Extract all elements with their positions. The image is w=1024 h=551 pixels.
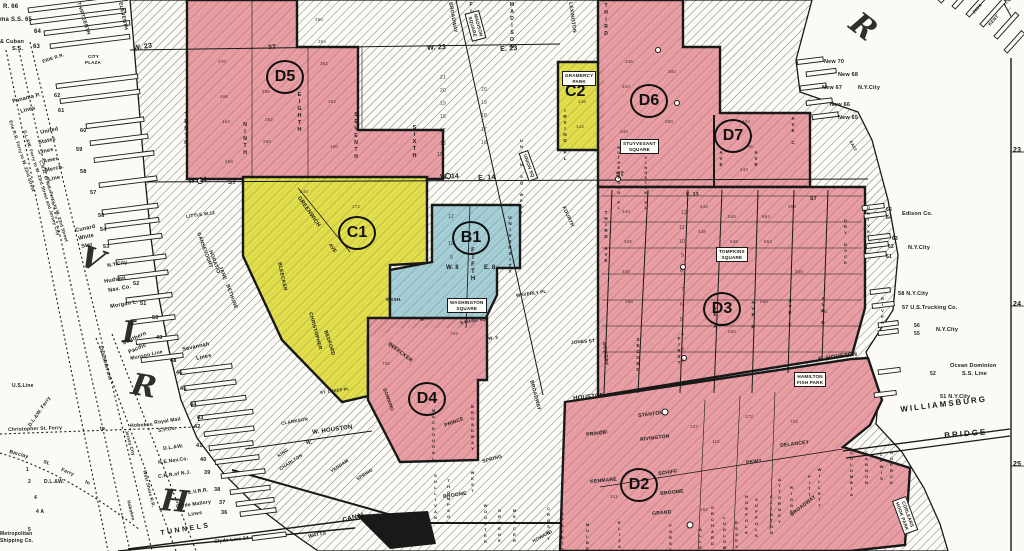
street-label: IRVING PL [562,108,567,162]
park-label: MADISON SQUARE [465,10,487,42]
street-label: 10 [679,240,685,245]
street-label: BROADWAY [790,495,817,518]
pier-label-hudson: 37 [219,501,226,507]
pier-label-east-river: 65 [886,208,892,213]
pier-label-hudson: Barclay [9,450,29,460]
street-label: CANNON [864,450,868,486]
pier-label-hudson: 63 [33,44,40,50]
street-label: 16 [481,141,487,146]
block-number: 262 [265,118,273,123]
street-label: 20 [481,88,487,93]
street-label: 8 [680,269,683,274]
street-label: WILLETT [817,467,821,509]
street-label: UNIVERSITY [507,215,512,275]
pier-label-hudson: L.V.R.R. [188,488,209,496]
pier-label-hudson: 40 [200,458,207,464]
block-number: 458 [225,160,233,165]
block-number: 348 [622,270,630,275]
park-label: TOMPKINS SQUARE [716,247,748,262]
street-label: 16 [440,142,446,147]
street-label: STANTON [638,411,664,419]
block-number: 260 [263,140,271,145]
street-label: 21 [440,76,446,81]
pier-label-hudson: to [100,427,105,432]
street-label: UNION SQ WEST [519,138,523,216]
street-label: HOUSTON [573,393,605,402]
block-number: 137 [690,425,698,430]
pier-label-hudson: 38 [214,488,221,494]
street-label: W. 3 [488,336,498,342]
street-label: BOWERY [601,342,608,366]
pier-label-hudson: 1 [26,468,29,473]
pier-label-hudson: Jersey City [124,430,136,456]
pier-label-hudson: Lines [20,106,36,115]
block-number: 470 [218,60,226,65]
pier-label-east-river: 51 N.Y.City [940,395,970,401]
pier-label-east-river: N.Y.City [936,328,958,334]
pier-label-east-river: New 67 [822,86,842,92]
pier-label-hudson: Clyde Line 34 [214,536,249,545]
pier-label-hudson: U.S.Line [12,384,34,389]
zone-label-D7: D7 [714,119,752,153]
block-number: 346 [624,240,632,245]
street-label: KING [277,448,289,459]
zone-grade-text: D4 [417,391,437,407]
street-label: EAST [848,140,857,152]
pier-label-hudson: 45 [180,387,187,393]
pier-label-hudson: Royal Mail [154,417,181,426]
pier-label-east-river: 56 [914,324,920,329]
pier-label-hudson: & Cuban [0,40,24,46]
pier-label-hudson: Ferry [60,468,74,478]
pier-label-hudson: 46 [176,371,183,377]
street-label: W. HOUSTON [312,424,353,436]
pier-label-hudson: D.L.&W. Ferry [28,396,52,428]
street-label: ST [810,197,817,202]
block-number: 142 [576,125,584,130]
street-label: 7 [681,288,684,293]
street-label: DOWNING [382,388,394,412]
street-label: S.WASH. SQ. [460,317,487,325]
pier-label-hudson: 60 [80,129,87,135]
street-label: AVE [753,150,758,168]
street-label: 17 [440,129,446,134]
street-label: 3 [681,348,684,353]
block-number: 715 [790,420,798,425]
street-label: 19 [481,101,487,106]
pier-label-hudson: Nav. Co. [108,285,132,294]
street-label: ST. LUKES PL [320,387,349,395]
street-label: RUTHERFORD PL [616,146,620,211]
street-label: CHRISTOPHER [307,312,322,350]
street-label: PKWY [746,459,762,466]
street-label: RIVER [880,296,884,326]
street-label: AVE [327,243,337,254]
block-number: 356 [625,300,633,305]
street-label: MULBERRY [585,522,589,551]
street-label: FOURTH [560,206,574,228]
street-label: SULLIVAN [433,473,437,521]
street-label: NINTH [242,122,247,157]
street-label: LEXINGTON [567,2,576,33]
street-label: LUDLOW [722,515,726,551]
street-label: ESSEX [734,520,738,550]
street-label: ELEVENTH [117,2,128,31]
street-label: DELANCEY [780,440,810,449]
street-label: GREENE [497,508,501,544]
pier-label-east-river: 55 [914,332,920,337]
street-label: GOERCK [889,450,893,486]
street-label: SCHIFF [658,470,678,477]
block-number: 115 [712,440,720,445]
zone-label-D5: D5 [266,60,304,94]
street-label: 18 [440,115,446,120]
street-label: WAVERLY PL [516,290,547,299]
plate-number: 23 [1013,147,1021,154]
street-label: MADISON [509,2,514,51]
pier-label-hudson: Shipping Co. [0,539,33,544]
pier-label-hudson: N.Y.City [107,260,128,268]
pier-label-hudson: 44 [190,403,197,409]
pier-label-hudson: Lines [38,148,54,157]
pier-label-hudson: 2 [28,480,31,485]
park-label: STUYVESANT SQUARE [620,139,659,154]
pier-label-hudson: 4 [34,496,37,501]
street-label: BROADWAY [447,2,457,33]
street-label: W. [306,441,312,446]
street-label: PLAZA [85,61,101,66]
zone-grade-text: D6 [639,93,659,109]
pier-label-hudson: 36 [221,511,228,517]
pier-label-hudson: Panama P. [12,93,41,105]
street-label: 12 [448,215,454,220]
block-number: 380 [668,70,676,75]
block-number: 654 [762,215,770,220]
block-number: 160 [330,145,338,150]
street-label: W. 23 [427,44,446,52]
street-label: VANDAM [330,459,350,474]
block-number: 442 [740,168,748,173]
street-label: ALLEN [698,527,702,551]
pier-label-hudson: 61 [58,109,65,115]
block-number: 650 [760,300,768,305]
zone-grade-text: B1 [461,230,481,246]
pier-label-hudson: States [38,137,56,146]
pier-label-hudson: Savannah [182,342,210,353]
pier-label-hudson: Hoboken [130,423,153,429]
street-label: KENMARE [590,478,617,485]
street-label: DRIVE [866,205,870,235]
street-label: ERIE R.R. [42,53,65,64]
pier-label-hudson: Christopher St. Ferry [8,426,62,433]
river-letter: R [129,370,159,404]
pier-label-east-river: Edison Co. [902,212,933,218]
street-label: ST [228,180,236,186]
pier-label-east-river: New 68 [838,73,858,79]
river-letter: I [122,318,136,348]
block-number: 344 [622,85,630,90]
pier-label-hudson: 23rd Street and [98,345,112,381]
block-number: 246 [600,430,608,435]
pier-label-hudson: Morgan L. [110,300,139,310]
block-number: 362 [320,62,328,67]
street-label: SPRING [482,455,503,465]
street-label: 11 [679,226,685,231]
pier-label-hudson: 59 [76,148,83,154]
street-label: PRINCE [444,417,465,429]
pier-label-east-river: 63 [892,237,898,242]
block-number: 438 [698,230,706,235]
zone-label-D4: D4 [408,382,446,416]
pier-label-east-river: 58 N.Y.City [898,292,928,298]
pier-label-hudson: 54 [100,228,107,234]
pier-label-east-river: N.Y.City [908,246,930,252]
pier-label-hudson: 52 [133,282,140,288]
pier-label-hudson: D.L.&W. [163,444,184,452]
street-label: SPRING [356,468,374,482]
street-label: W. 4 [420,317,430,323]
pier-label-hudson: 48 [170,359,177,365]
street-label: W. 8 [446,265,459,271]
block-number: 550 [728,330,736,335]
street-label: WEST [470,470,474,494]
pier-label-hudson: Merch. [45,165,65,174]
zone-grade-text: D3 [712,301,732,317]
street-label: GREENWICH [295,196,320,229]
zone-label-D6: D6 [630,84,668,118]
street-label: BROOME [443,492,467,500]
street-label: ORCHARD [710,505,714,547]
street-label: AVE [718,150,723,168]
street-label: 9 [450,256,453,261]
block-number: 172 [745,415,753,420]
block-number: 781 [820,310,828,315]
pier-label-hudson: 51 [140,302,147,308]
street-label: DRY DOCK [843,218,847,266]
street-label: BEDFORD [322,330,335,356]
block-number: 744 [450,332,458,337]
street-label: THOMPSON [446,478,450,526]
pier-label-hudson: S.P.Co. [158,426,177,433]
street-label: AVE C [787,298,792,328]
pier-label-hudson: R. 66 [3,4,18,10]
pier-label-hudson: 62 [54,94,61,100]
street-label: ATTORNEY [777,477,781,525]
block-number: 366 [315,18,323,23]
street-label: AVE B [750,300,755,330]
street-label: 4 [681,333,684,338]
street-label: JONES ST [571,339,595,346]
street-label: W. 14 [188,176,207,185]
pier-label-hudson: 58 [80,170,87,176]
street-label: BLEECKER [276,262,287,292]
street-label: 15 [437,153,443,158]
pier-label-hudson: 64 [34,29,41,35]
street-label: SUFFOLK [754,497,758,539]
pier-label-east-river: New 65 [838,116,858,122]
street-label: COLUMBIA [849,450,853,498]
street-label: KENT [988,14,1000,27]
pier-label-hudson: TUNNELS [160,522,211,537]
street-label: TENTH [183,112,188,147]
street-label: E. 8 [484,265,495,271]
street-label: GRAND [652,510,672,517]
river-letter: H [159,486,190,518]
map-labels-layer: W. 23W. 23E. 23STW. 14STW. 14E. 14STSTTH… [0,0,1024,551]
street-label: LIVINGSTON PL [643,146,647,211]
pier-label-east-river: 62 [888,245,894,250]
security-map: W. 23W. 23E. 23STW. 14STW. 14E. 14STSTTH… [0,0,1024,551]
street-label: LITTLE W.12 [186,211,215,219]
zone-grade-text: D7 [723,128,743,144]
block-number: 546 [730,240,738,245]
pier-label-hudson: Hudson [104,276,126,285]
block-number: 146 [578,100,586,105]
pier-label-hudson: Lines [188,511,203,518]
park-label: HAMILTON FISH PARK [794,372,826,387]
street-label: WASH. [386,298,402,303]
street-label: CLARKSON [281,417,308,426]
pier-label-hudson: St. [42,460,50,467]
street-label: E. HOUSTON [818,352,858,363]
street-label: 19 [440,102,446,107]
block-number: 464 [222,120,230,125]
street-label: PITT [807,474,811,498]
street-label: FORSYTH [668,523,672,551]
block-number: 664 [764,240,772,245]
street-label: 6 [680,303,683,308]
zone-label-B1: B1 [452,221,490,255]
street-label: SEVENTH [353,112,358,161]
street-label: JAVA [972,3,983,15]
zone-grade-text: D5 [275,69,295,85]
pier-label-east-river: New 66 [830,103,850,109]
park-label: WASHINGTON SQUARE [447,298,487,313]
street-label: E. 13 [686,192,699,198]
pier-label-hudson: 50 [152,316,159,322]
pier-label-east-river: 61 [886,255,892,260]
zone-label-C1: C1 [338,216,376,250]
plate-number: 25 [1013,461,1021,468]
block-number: 466 [220,95,228,100]
zone-label-D2: D2 [620,468,658,502]
pier-label-hudson: 39 [204,471,211,477]
block-number: 340 [620,130,628,135]
block-number: 172 [352,205,360,210]
pier-label-hudson: D.L.&W. [44,480,64,485]
pier-label-hudson: S.S. [12,47,23,53]
pier-label-east-river: Ocean Dominion [950,364,997,370]
street-label: 20 [440,89,446,94]
street-label: RIVINGTON [640,434,670,443]
pier-label-hudson: 42 [194,425,201,431]
street-label: 9 [681,254,684,259]
zone-label-C2: C2 [565,84,585,100]
street-label: CLINTON [769,494,773,536]
street-label: 5 [680,318,683,323]
block-number: 311 [610,495,618,500]
pier-label-hudson: 4 A [36,510,44,515]
street-label: JANE [217,266,227,281]
pier-label-east-river: 57 U.S.Trucking Co. [902,306,957,312]
street-label: SECOND [635,337,640,373]
plate-number: 24 [1013,301,1021,308]
pier-label-hudson: 41 [196,444,203,450]
street-label: MERCER [512,508,516,544]
zone-label-D3: D3 [703,292,741,326]
pier-label-east-river: N.Y.City [858,86,880,92]
pier-label-hudson: N.E.Nav.Co. [158,457,189,466]
block-number: 344 [622,210,630,215]
street-label: 18 [481,114,487,119]
zone-grade-text: C1 [347,225,367,241]
street-label: 17 [481,128,487,133]
block-number: 726 [382,362,390,367]
street-label: W. 14 [440,173,459,181]
street-label: THIRD AVE [603,210,608,264]
street-label: BROADWAY [528,380,541,411]
pier-label-east-river: 64 [886,216,892,221]
block-number: 152 [700,508,708,513]
block-number: 164 [328,100,336,105]
street-label: W. 23 [133,42,153,52]
pier-label-hudson: Lines [196,354,212,363]
pier-label-hudson: C.R.R.of N.J. [158,470,191,480]
street-label: AVE C [790,116,795,146]
pier-label-east-river: 52 [930,372,936,377]
street-label: BROADWAY [470,404,474,452]
street-label: 12 [681,211,687,216]
street-label: MACDOUGAL [431,408,435,462]
pier-label-east-river: New 70 [824,60,844,66]
street-label: ELIZABETH [617,520,621,551]
pier-label-east-river: S.S. Line [962,372,987,378]
street-label: BRIDGE [944,428,988,440]
zone-grade-text: D2 [629,477,649,493]
pier-label-hudson: West Shore R.R. [142,470,156,508]
street-label: EIGHTH [296,92,302,134]
street-label: SIXTH [411,125,417,160]
block-number: 364 [318,40,326,45]
river-letter: R [844,8,882,47]
pier-label-hudson: 57 [90,191,97,197]
street-label: THIRTEENTH [75,2,90,36]
street-label: CANAL [342,512,367,524]
pier-label-hudson: Metropolitan [0,532,32,537]
pier-label-hudson: Hoboken [126,500,135,521]
street-label: E. 14 [478,174,496,182]
street-label: NORFOLK [744,494,748,536]
pier-label-hudson: 49 [156,336,163,342]
block-number: 394 [788,205,796,210]
street-label: LAFAYETTE [560,505,564,551]
street-label: WATTS [308,531,327,540]
pier-label-hudson: United [40,127,59,136]
park-label: CORLEARS HOOK PARK [892,496,918,535]
street-label: GRAND [398,514,418,521]
street-label: BETHUNE [224,284,237,310]
street-label: THIRD [603,3,608,38]
pier-label-hudson: Amer. [43,157,60,166]
block-number: 346 [625,60,633,65]
block-number: 268 [262,90,270,95]
block-number: 360 [665,120,673,125]
pier-label-hudson: to [84,480,91,487]
block-number: 140 [300,190,308,195]
street-label: LEWIS [879,452,883,482]
street-label: FIRST [676,336,681,366]
street-label: ST [268,45,276,51]
